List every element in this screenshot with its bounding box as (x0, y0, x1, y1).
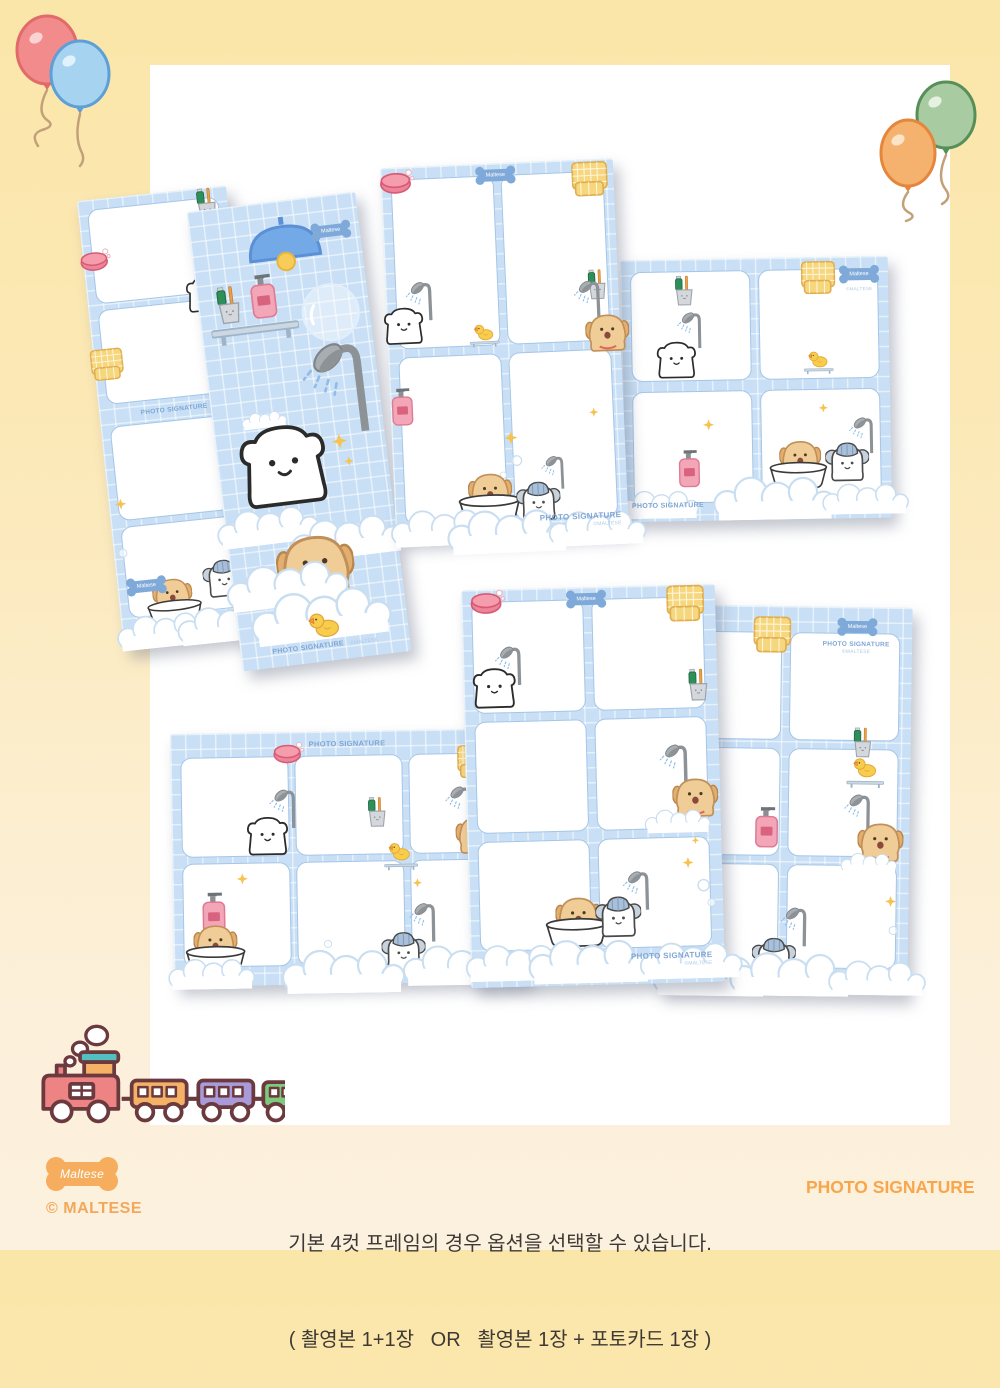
sparkle-icon (343, 456, 354, 467)
frame-portrait-4cut: Maltese PHOTO SIGNATURE ©MALTESE (380, 158, 629, 542)
soap-bottle-icon (677, 449, 702, 488)
watermark-sub: ©MALTESE (834, 286, 884, 293)
bone-tag-icon: Maltese (478, 168, 512, 181)
watermark-sub: ©MALTESE (814, 649, 898, 657)
copyright-text: © MALTESE (46, 1200, 142, 1218)
bone-tag-label: Maltese (486, 172, 506, 179)
toothbrush-cup-icon (672, 275, 697, 306)
bubble-icon (888, 925, 898, 935)
bubble-icon (117, 548, 128, 559)
bone-tag-label: Maltese (848, 624, 867, 630)
soap-icon (378, 167, 415, 196)
bone-tag-label: Maltese (849, 271, 868, 277)
shelf-icon (846, 779, 884, 790)
balloon-orange-icon (881, 120, 935, 221)
toothbrush-cup-icon (365, 796, 390, 827)
towel-icon (798, 257, 839, 298)
sparkle-icon (504, 431, 519, 446)
frame-watermark: PHOTO SIGNATURE ©MALTESE (814, 640, 898, 656)
towel-icon (663, 580, 708, 625)
bone-tag-label: Maltese (576, 596, 595, 603)
sparkle-icon (885, 895, 897, 907)
towel-icon (568, 156, 612, 200)
frame-landscape-4cut: Maltese ©MALTESE PHOTO SIGNATURE (620, 256, 893, 523)
caption-line-1: 기본 4컷 프레임의 경우 옵션을 선택할 수 있습니다. (150, 1228, 850, 1260)
photo-signature-wordmark: PHOTO SIGNATURE (806, 1177, 975, 1198)
sparkle-icon (703, 419, 715, 431)
sparkle-icon (331, 432, 349, 450)
shower-icon (541, 452, 567, 490)
soap-bottle-icon (247, 272, 280, 321)
bear-icon (245, 814, 290, 859)
bear-icon (382, 304, 426, 348)
frame-portrait-6cut: Maltese PHOTO SIGNATURE ©MALTESE (461, 584, 725, 989)
shower-icon (409, 899, 438, 942)
bone-tag-label: Maltese (136, 582, 156, 590)
toothbrush-cup-icon (685, 668, 712, 702)
bone-tag-icon: Maltese (842, 268, 876, 281)
sparkle-icon (114, 498, 127, 511)
suds-icon (825, 957, 930, 996)
shelf-icon (384, 862, 418, 872)
bubble-icon (323, 939, 332, 948)
sparkle-icon (691, 836, 699, 844)
caption-line-2: ( 촬영본 1+1장 OR 촬영본 1장 + 포토카드 1장 ) (150, 1324, 850, 1356)
bubble-icon (707, 898, 716, 907)
soap-icon (78, 246, 112, 273)
balloons-top-left (10, 8, 130, 173)
soap-icon (469, 587, 506, 615)
balloons-top-right (868, 68, 980, 228)
bone-tag-icon: Maltese (313, 223, 348, 239)
rubber-duck-icon (306, 606, 343, 640)
sparkle-icon (682, 856, 694, 868)
soap-bottle-icon (390, 387, 416, 427)
suds-icon (820, 479, 913, 515)
suds-icon (839, 851, 899, 874)
rubber-duck-icon (388, 840, 412, 861)
bone-tag-icon: Maltese (569, 593, 603, 606)
option-caption: 기본 4컷 프레임의 경우 옵션을 선택할 수 있습니다. ( 촬영본 1+1장… (150, 1164, 850, 1388)
shelf-icon (804, 367, 834, 376)
watermark-sub: ©MALTESE (350, 637, 379, 646)
bone-logo-label: Maltese (60, 1167, 104, 1181)
shower-icon (622, 868, 651, 912)
puppy-icon (584, 310, 630, 356)
sparkle-icon (236, 873, 248, 885)
soap-bottle-icon (753, 806, 780, 849)
bone-tag-label: Maltese (321, 226, 341, 234)
towel-icon (750, 612, 795, 657)
rubber-duck-icon (852, 755, 878, 778)
balloon-blue-icon (51, 41, 109, 166)
train-icon (35, 1022, 285, 1134)
suds-icon (166, 955, 259, 991)
toothbrush-cup-icon (851, 727, 875, 758)
photo-slot (474, 719, 589, 834)
shelf-icon (470, 339, 500, 348)
frame-watermark: PHOTO SIGNATURE (300, 738, 394, 749)
bubble-icon (696, 878, 710, 892)
sparkle-icon (412, 878, 422, 888)
bone-tag-icon: Maltese (840, 621, 874, 633)
suds-icon (278, 944, 411, 994)
shower-icon (848, 414, 875, 454)
suds-icon (643, 806, 714, 834)
rubber-duck-icon (807, 349, 829, 368)
frame-watermark: PHOTO SIGNATURE ©MALTESE (626, 950, 712, 969)
rubber-duck-icon (473, 321, 496, 341)
bone-tag-icon: Maltese (129, 578, 164, 593)
lamp-icon (238, 211, 331, 284)
maltese-bone-logo: Maltese (54, 1162, 110, 1186)
bear-icon (655, 339, 698, 382)
watermark-text: PHOTO SIGNATURE (823, 641, 890, 649)
towel-icon (86, 343, 128, 385)
sparkle-icon (818, 403, 828, 413)
toothbrush-cup-icon (212, 284, 247, 326)
sparkle-icon (589, 407, 599, 417)
bear-icon (471, 665, 518, 712)
bubble-icon (511, 454, 524, 467)
